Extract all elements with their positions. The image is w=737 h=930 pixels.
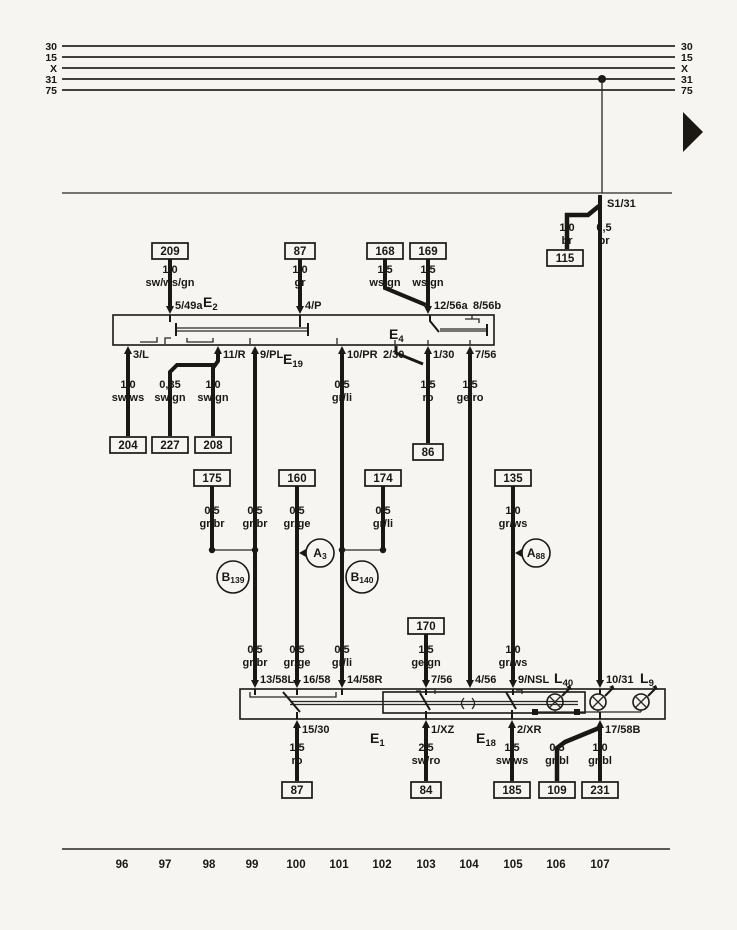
wire-204-size: 1,0 xyxy=(120,379,135,391)
wiring-diagram-canvas: 30 15 X 31 75 30 15 X 31 75 S1/31 1,0 br… xyxy=(0,0,737,930)
terminal-7-56-top: 7/56 xyxy=(475,349,496,361)
splice-a3-arrow xyxy=(299,549,306,557)
connector-231-number: 231 xyxy=(590,785,610,797)
wire-227-size: 0,35 xyxy=(159,379,180,391)
track-98: 98 xyxy=(203,859,216,871)
contact-hooks xyxy=(140,337,470,345)
connector-175-number: 175 xyxy=(202,473,222,485)
wire-gr-li-b-color: gr/li xyxy=(332,657,352,669)
terminal-17-58b: 17/58B xyxy=(605,724,641,736)
connector-168-number: 168 xyxy=(375,246,395,258)
terminal-4-p: 4/P xyxy=(305,300,322,312)
wire-160-size: 0,5 xyxy=(289,505,304,517)
wire-84-size: 2,5 xyxy=(418,742,433,754)
terminal-3-l: 3/L xyxy=(133,349,149,361)
terminal-15-30: 15/30 xyxy=(302,724,330,736)
component-e19-label: E19 xyxy=(283,351,303,370)
wire-86-color: ro xyxy=(423,392,434,404)
wire-170-color: ge/gn xyxy=(411,657,441,669)
component-l9-label: L9 xyxy=(640,670,654,689)
wire-gr-li-size: 0,5 xyxy=(334,379,349,391)
wire-115-size: 1,0 xyxy=(559,222,574,234)
wire-135-size: 1,0 xyxy=(505,505,520,517)
terminal-11-r: 11/R xyxy=(223,349,246,361)
wire-gr-li-b-size: 0,5 xyxy=(334,644,349,656)
e18-prefix: E xyxy=(476,730,485,746)
lower-contact-bracket xyxy=(250,692,336,697)
track-105: 105 xyxy=(503,859,523,871)
b139-prefix: B xyxy=(222,570,231,584)
terminal-10-31: 10/31 xyxy=(606,674,634,686)
wire-87-color: gr xyxy=(295,277,307,289)
wire-169-color: ws/gn xyxy=(411,277,443,289)
track-107: 107 xyxy=(590,859,609,871)
wire-87b-size: 1,5 xyxy=(289,742,304,754)
wire-gr-br-c-size: 0,5 xyxy=(247,644,262,656)
arrow-into-5-49a xyxy=(166,306,174,314)
connector-227-number: 227 xyxy=(160,440,179,452)
component-e2-label: E2 xyxy=(203,294,218,313)
arrow-14-58r xyxy=(338,680,346,688)
e4-sub: 4 xyxy=(398,334,404,345)
terminal-4-56: 4/56 xyxy=(475,674,496,686)
wire-109-size: 0,5 xyxy=(549,742,564,754)
bus-label-right-75: 75 xyxy=(681,85,693,97)
component-e4-label: E4 xyxy=(389,326,404,345)
splice-b140-label: B140 xyxy=(351,570,374,585)
terminal-12-56a: 12/56a xyxy=(434,300,469,312)
e18-lever-1xz xyxy=(420,693,430,719)
wire-87-size: 1,0 xyxy=(292,264,307,276)
lower-contact-ticks xyxy=(255,689,342,695)
b139-sub: 139 xyxy=(230,575,244,585)
e2-sub: 2 xyxy=(212,302,217,313)
wire-ge-ro-size: 1,5 xyxy=(462,379,477,391)
component-e18-label: E18 xyxy=(476,730,496,749)
track-102: 102 xyxy=(372,859,391,871)
wire-204-color: sw/ws xyxy=(112,392,144,404)
wire-160-color: gr/ge xyxy=(284,518,311,530)
wire-175-size: 0,5 xyxy=(204,505,219,517)
e2-prefix: E xyxy=(203,294,212,310)
b140-prefix: B xyxy=(351,570,360,584)
terminal-2-xr: 2/XR xyxy=(517,724,542,736)
splice-a3-label: A3 xyxy=(313,546,327,561)
connector-160-number: 160 xyxy=(287,473,306,485)
terminal-8-56b: 8/56b xyxy=(473,300,501,312)
rail-node-2 xyxy=(574,709,580,715)
wire-gr-ws-b-color: gr/ws xyxy=(499,657,528,669)
arrow-13-58l xyxy=(251,680,259,688)
arrow-4-56 xyxy=(466,680,474,688)
wire-gr-ge-b-size: 0,5 xyxy=(289,644,304,656)
track-99: 99 xyxy=(246,859,259,871)
terminal-1-xz: 1/XZ xyxy=(431,724,455,736)
arrow-9-nsl xyxy=(509,680,517,688)
ground-label: S1/31 xyxy=(607,198,636,210)
wire-gr-ws-b-size: 1,0 xyxy=(505,644,520,656)
a3-sub: 3 xyxy=(322,551,327,561)
terminal-13-58l: 13/58L xyxy=(260,674,295,686)
e1-prefix: E xyxy=(370,730,379,746)
bulb-rail xyxy=(535,710,641,712)
e4-switch-lever xyxy=(430,315,439,332)
terminal-10-pr: 10/PR xyxy=(347,349,378,361)
e19-prefix: E xyxy=(283,351,292,367)
track-104: 104 xyxy=(459,859,479,871)
connector-209-number: 209 xyxy=(160,246,179,258)
component-e1-label: E1 xyxy=(370,730,385,749)
wire-br-color: br xyxy=(599,235,611,247)
e4-prefix: E xyxy=(389,326,398,342)
splice-a88-label: A88 xyxy=(527,546,545,561)
wire-br-size: 0,5 xyxy=(596,222,611,234)
wire-208-color: sw/gn xyxy=(197,392,228,404)
connector-174-number: 174 xyxy=(373,473,393,485)
inline-connector-symbol xyxy=(462,698,475,709)
connector-135-number: 135 xyxy=(503,473,523,485)
wire-gr-ge-b-color: gr/ge xyxy=(284,657,311,669)
wire-gr-br-b-color: gr/br xyxy=(242,518,268,530)
junction-dot-10pr xyxy=(339,547,345,553)
wire-170-size: 1,5 xyxy=(418,644,433,656)
wire-115-color: br xyxy=(562,235,574,247)
e1-sub: 1 xyxy=(379,738,385,749)
terminal-16-58: 16/58 xyxy=(303,674,331,686)
arrow-into-4-p xyxy=(296,306,304,314)
wiring-diagram-page: 30 15 X 31 75 30 15 X 31 75 S1/31 1,0 br… xyxy=(0,0,737,930)
arrow-10-31 xyxy=(596,680,604,688)
wire-84-color: sw/ro xyxy=(412,755,441,767)
wire-109-color: gr/bl xyxy=(545,755,569,767)
terminal-9-nsl: 9/NSL xyxy=(518,674,549,686)
terminal-14-58r: 14/58R xyxy=(347,674,383,686)
wire-ge-ro-color: ge/ro xyxy=(457,392,484,404)
track-scale: 96 97 98 99 100 101 102 103 104 105 106 … xyxy=(62,849,670,871)
junction-dot-174 xyxy=(380,547,386,553)
wire-168-color: ws/gn xyxy=(368,277,400,289)
wire-185-size: 1,5 xyxy=(504,742,519,754)
e18-lever-2xr xyxy=(506,692,516,719)
splice-b139-label: B139 xyxy=(222,570,245,585)
track-106: 106 xyxy=(546,859,565,871)
continuation-arrow-icon xyxy=(683,112,703,152)
wire-174-size: 0,5 xyxy=(375,505,390,517)
connector-87-bot-number: 87 xyxy=(291,785,304,797)
wire-gr-br-b-size: 0,5 xyxy=(247,505,262,517)
track-103: 103 xyxy=(416,859,435,871)
b140-sub: 140 xyxy=(359,575,373,585)
wire-86-size: 1,5 xyxy=(420,379,435,391)
wire-gr-br-c-color: gr/br xyxy=(242,657,268,669)
connector-169-number: 169 xyxy=(418,246,437,258)
connector-185-number: 185 xyxy=(502,785,522,797)
a3-prefix: A xyxy=(313,546,322,560)
wire-227-color: sw/gn xyxy=(154,392,185,404)
wire-gr-li-color: gr/li xyxy=(332,392,352,404)
wire-135-color: gr/ws xyxy=(499,518,528,530)
ground-point-s1-31: S1/31 1,0 br 0,5 br 115 xyxy=(547,195,636,684)
track-101: 101 xyxy=(329,859,349,871)
wire-168-size: 1,5 xyxy=(377,264,392,276)
wire-175-color: gr/br xyxy=(199,518,225,530)
e1-switch-lever xyxy=(283,692,300,719)
e18-sub: 18 xyxy=(485,738,496,749)
wire-209-color: sw/ws/gn xyxy=(146,277,195,289)
arrow-7-56-bot xyxy=(422,680,430,688)
track-100: 100 xyxy=(286,859,305,871)
wire-231-color: gr/bl xyxy=(588,755,612,767)
wire-169-size: 1,5 xyxy=(420,264,435,276)
splice-a88-arrow xyxy=(515,549,522,557)
arrow-into-12-56a xyxy=(424,306,432,314)
terminal-9-pl: 9/PL xyxy=(260,349,284,361)
wire-208-size: 1,0 xyxy=(205,379,220,391)
wire-209-size: 1,0 xyxy=(162,264,177,276)
connector-87-top-number: 87 xyxy=(294,246,307,258)
wire-174-color: gr/li xyxy=(373,518,393,530)
e2-switch-ends xyxy=(176,315,308,336)
rail-node-1 xyxy=(532,709,538,715)
connector-204-number: 204 xyxy=(118,440,138,452)
a88-prefix: A xyxy=(527,546,536,560)
track-97: 97 xyxy=(159,859,172,871)
bus-bars: 30 15 X 31 75 30 15 X 31 75 xyxy=(45,41,693,193)
bottom-terminals: 15/30 1/XZ 2/XR 17/58B E1 E18 1,5 ro 2,5… xyxy=(282,720,641,798)
terminal-7-56-bot: 7/56 xyxy=(431,674,452,686)
e4-terminal-8-56b-link xyxy=(465,315,479,323)
a88-sub: 88 xyxy=(536,551,546,561)
bus-label-left-75: 75 xyxy=(45,85,57,97)
connector-109-number: 109 xyxy=(547,785,566,797)
terminal-5-49a: 5/49a xyxy=(175,300,203,312)
junction-dot-175 xyxy=(209,547,215,553)
track-96: 96 xyxy=(116,859,129,871)
e19-sub: 19 xyxy=(292,359,303,370)
terminal-1-30: 1/30 xyxy=(433,349,454,361)
connector-208-number: 208 xyxy=(203,440,223,452)
connector-86-number: 86 xyxy=(422,447,435,459)
wire-185-color: sw/ws xyxy=(496,755,528,767)
connector-170-number: 170 xyxy=(416,621,435,633)
junction-dot-9pl xyxy=(252,547,258,553)
connector-115-number: 115 xyxy=(556,253,575,265)
wire-87b-color: ro xyxy=(292,755,303,767)
wire-231-size: 1,0 xyxy=(592,742,607,754)
connector-84-number: 84 xyxy=(420,785,433,797)
